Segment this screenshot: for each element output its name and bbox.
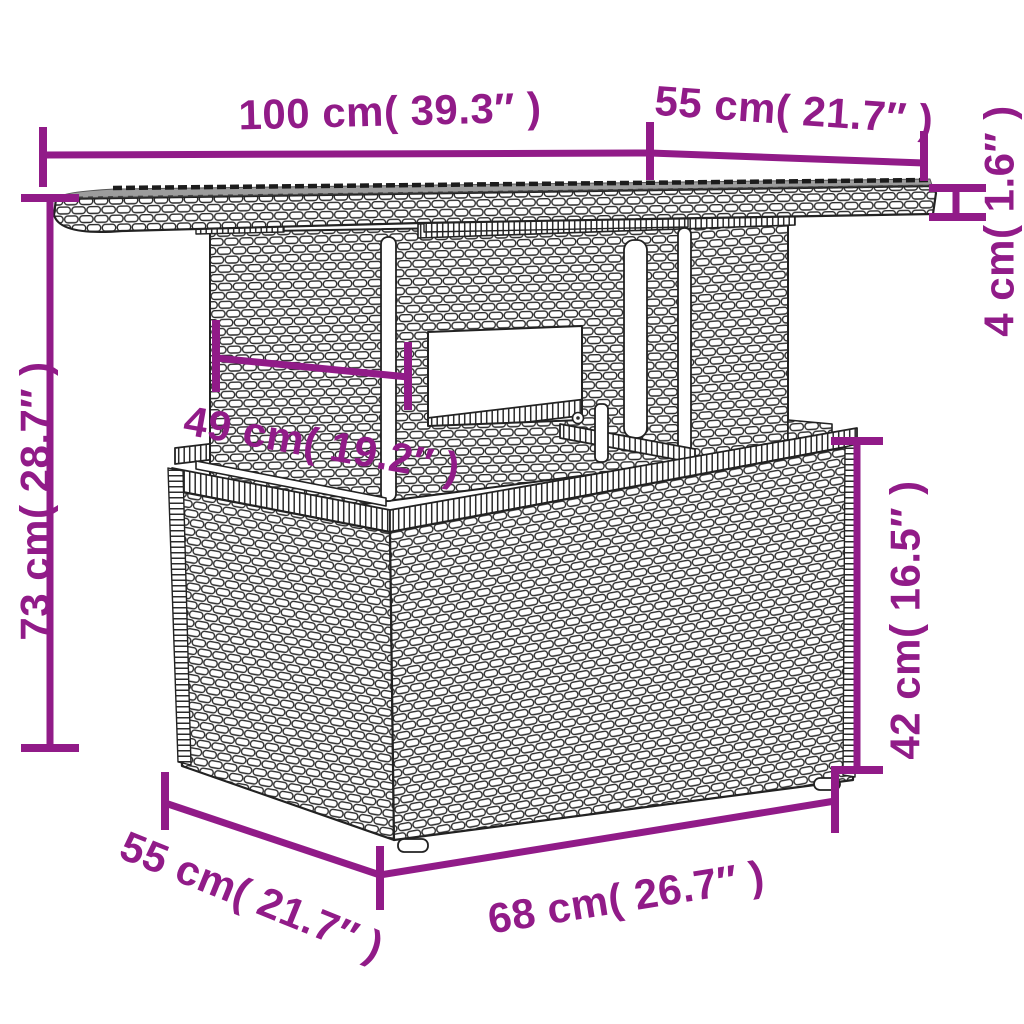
dimension-tabletop-thickness: 4 cm( 1.6″ ) (929, 105, 1023, 337)
dim-label-tabletop-thickness: 4 cm( 1.6″ ) (976, 105, 1023, 337)
dim-label-base-depth: 55 cm( 21.7″ ) (114, 822, 391, 970)
dimension-tabletop-depth: 55 cm( 21.7″ ) (650, 77, 935, 181)
dimension-total-height: 73 cm( 28.7″ ) (12, 198, 80, 750)
pedestal-corner-strip-right (678, 228, 691, 464)
garden-table-dimension-diagram: 100 cm( 39.3″ ) 55 cm( 21.7″ ) 4 cm( 1.6… (0, 0, 1024, 1024)
dim-label-tabletop-depth: 55 cm( 21.7″ ) (653, 77, 935, 143)
dimension-tabletop-width: 100 cm( 39.3″ ) (43, 84, 650, 187)
table-foot-front (398, 839, 428, 852)
dimension-diagram-page: 100 cm( 39.3″ ) 55 cm( 21.7″ ) 4 cm( 1.6… (0, 0, 1024, 1024)
dim-label-base-width: 68 cm( 26.7″ ) (484, 851, 767, 942)
dim-line (43, 153, 650, 155)
table-drawing (54, 179, 936, 852)
base-corner-post (595, 404, 608, 462)
base-box-left-face (172, 490, 394, 840)
dim-label-base-height: 42 cm( 16.5″ ) (882, 480, 929, 759)
dim-line (650, 153, 924, 163)
pedestal-side-face (688, 213, 788, 462)
screw-center-dot (576, 416, 580, 420)
dim-label-total-height: 73 cm( 28.7″ ) (12, 361, 59, 640)
pedestal-corner-strip-mid (624, 240, 647, 438)
dim-label-tabletop-width: 100 cm( 39.3″ ) (238, 84, 542, 139)
